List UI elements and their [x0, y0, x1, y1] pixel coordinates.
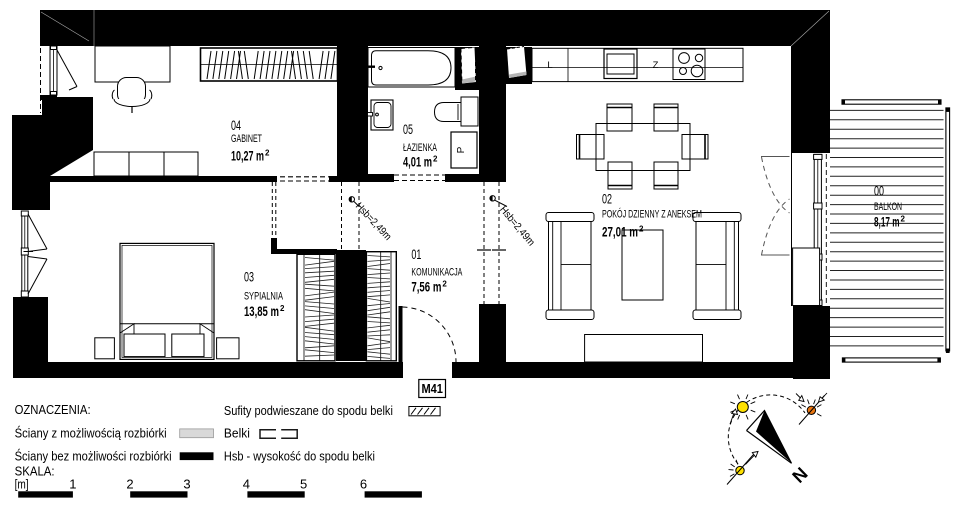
- svg-text:2: 2: [901, 215, 906, 224]
- svg-text:00: 00: [874, 183, 884, 198]
- svg-text:10,27 m: 10,27 m: [231, 149, 264, 164]
- svg-text:04: 04: [231, 118, 241, 133]
- svg-text:GABINET: GABINET: [231, 133, 262, 145]
- svg-text:OZNACZENIA:: OZNACZENIA:: [15, 402, 91, 417]
- svg-text:[m]: [m]: [15, 478, 29, 492]
- svg-text:01: 01: [411, 247, 421, 262]
- svg-text:27,01 m: 27,01 m: [602, 225, 638, 240]
- svg-text:2: 2: [126, 477, 133, 492]
- svg-text:2: 2: [433, 155, 438, 164]
- svg-text:SYPIALNIA: SYPIALNIA: [244, 291, 283, 303]
- svg-text:Z: Z: [653, 60, 659, 71]
- svg-text:2: 2: [265, 149, 270, 158]
- svg-text:SKALA:: SKALA:: [15, 465, 55, 479]
- svg-text:BALKON: BALKON: [874, 201, 902, 213]
- svg-text:7,56 m: 7,56 m: [411, 280, 441, 295]
- svg-text:2: 2: [280, 304, 285, 313]
- svg-text:6: 6: [360, 477, 367, 492]
- svg-text:13,85 m: 13,85 m: [244, 304, 279, 319]
- svg-text:M41: M41: [421, 382, 443, 396]
- svg-text:KOMUNIKACJA: KOMUNIKACJA: [411, 266, 462, 278]
- svg-text:05: 05: [403, 122, 413, 137]
- svg-text:1: 1: [69, 477, 76, 492]
- svg-text:4,01 m: 4,01 m: [403, 155, 432, 170]
- svg-text:Ściany bez możliwości rozbiórk: Ściany bez możliwości rozbiórki: [15, 449, 172, 464]
- svg-text:POKÓJ DZIENNY Z ANEKSEM: POKÓJ DZIENNY Z ANEKSEM: [602, 208, 702, 221]
- svg-text:Sufity podwieszane do spodu be: Sufity podwieszane do spodu belki: [224, 404, 393, 418]
- svg-text:4: 4: [243, 477, 250, 492]
- svg-text:02: 02: [602, 192, 612, 207]
- svg-text:8,17 m: 8,17 m: [874, 215, 900, 230]
- svg-text:Belki: Belki: [224, 427, 250, 441]
- svg-text:P: P: [456, 146, 467, 153]
- svg-text:Ściany z możliwością rozbiórki: Ściany z możliwością rozbiórki: [15, 426, 167, 441]
- svg-text:2: 2: [639, 225, 644, 234]
- svg-text:5: 5: [300, 477, 307, 492]
- svg-text:3: 3: [183, 477, 190, 492]
- svg-text:2: 2: [442, 280, 447, 289]
- svg-text:03: 03: [244, 270, 254, 285]
- svg-text:Hsb - wysokość do spodu belki: Hsb - wysokość do spodu belki: [224, 450, 375, 464]
- svg-text:ŁAZIENKA: ŁAZIENKA: [403, 142, 437, 154]
- svg-text:L: L: [547, 60, 552, 71]
